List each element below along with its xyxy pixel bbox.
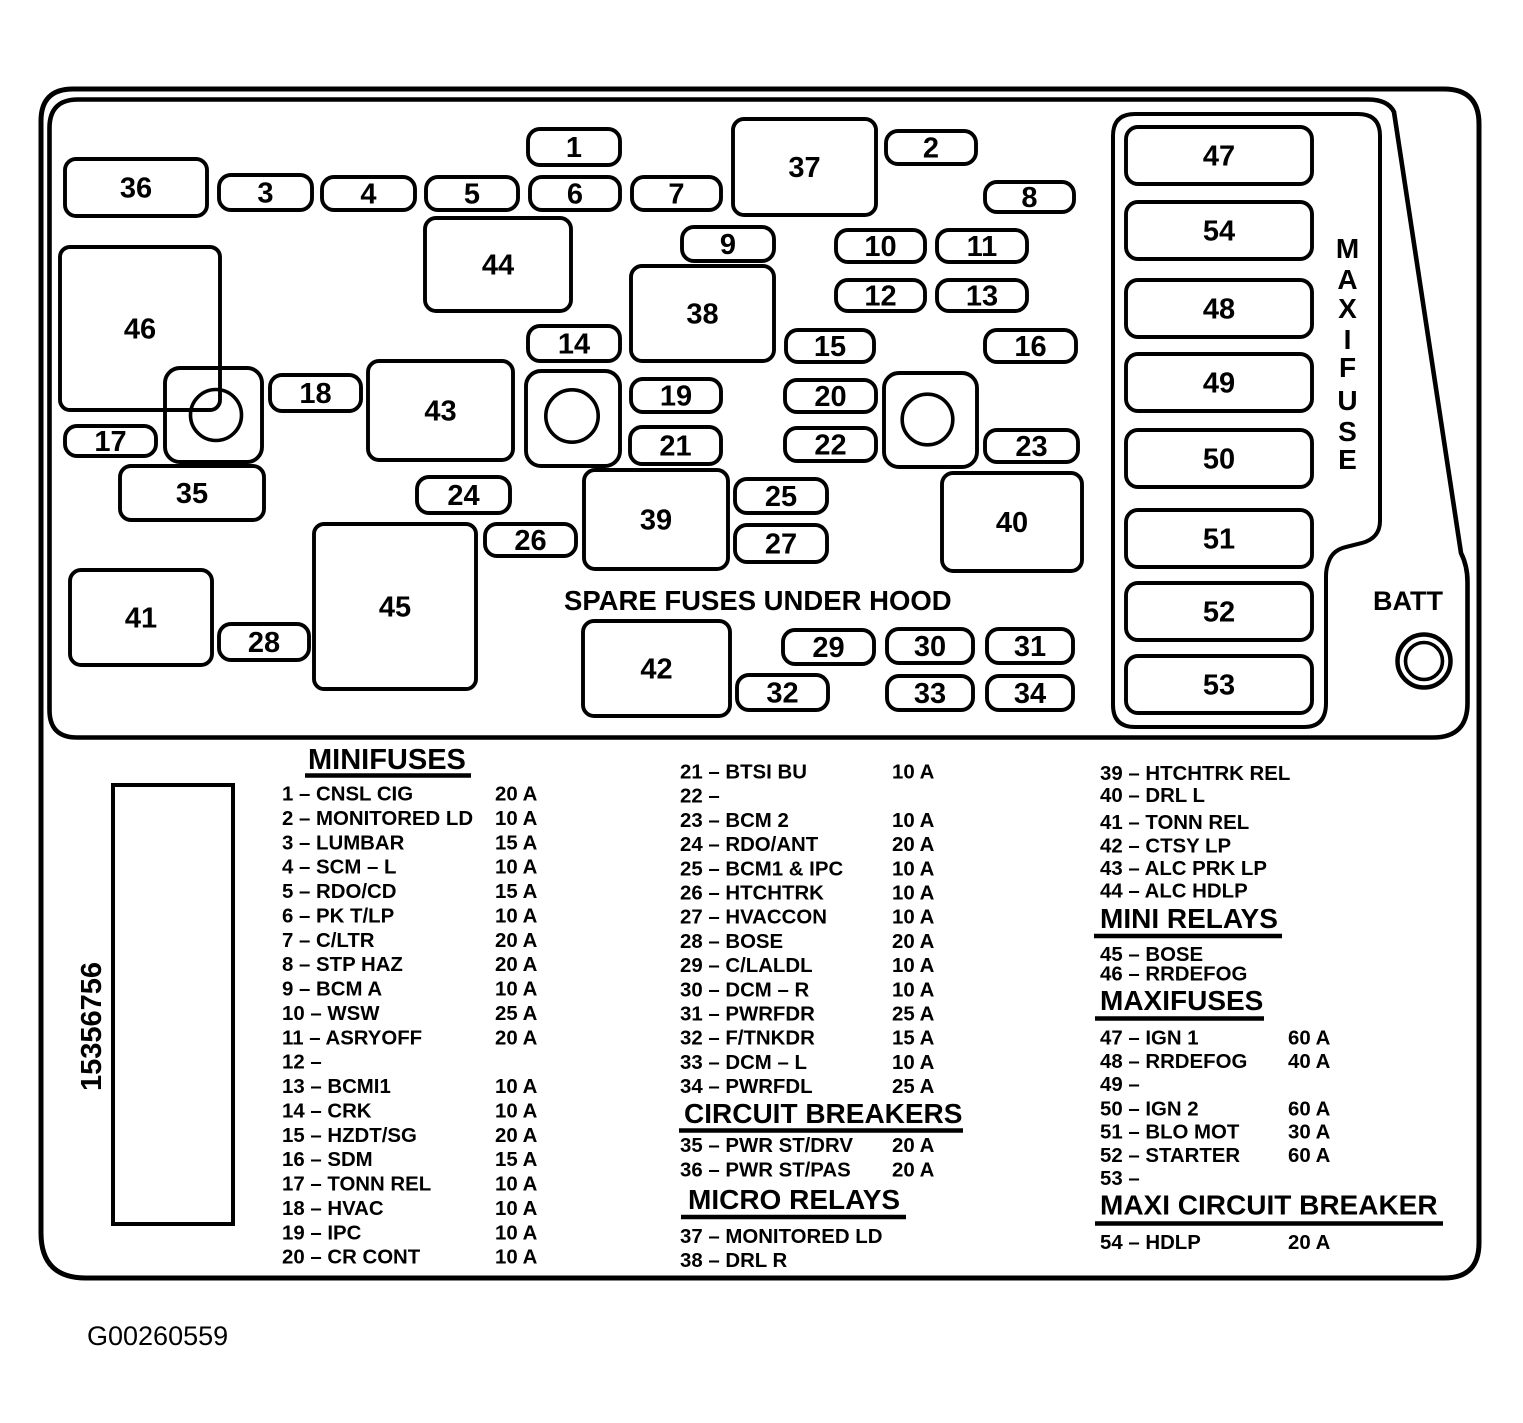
svg-text:19: 19	[660, 381, 692, 413]
svg-text:20 A: 20 A	[1288, 1232, 1331, 1254]
svg-text:46: 46	[124, 314, 156, 346]
svg-text:9: 9	[720, 229, 736, 261]
svg-text:22 –: 22 –	[680, 786, 720, 808]
svg-text:25 A: 25 A	[892, 1004, 935, 1026]
svg-text:1: 1	[566, 132, 582, 164]
svg-text:6: 6	[567, 179, 583, 211]
svg-text:15356756: 15356756	[76, 962, 108, 1091]
svg-text:37 – MONITORED LD: 37 – MONITORED LD	[680, 1226, 882, 1248]
svg-text:20 A: 20 A	[892, 931, 935, 953]
svg-text:12 –: 12 –	[282, 1052, 322, 1074]
svg-text:47: 47	[1203, 141, 1235, 173]
svg-text:48 – RRDEFOG: 48 – RRDEFOG	[1100, 1051, 1247, 1073]
svg-text:29 – C/LALDL: 29 – C/LALDL	[680, 955, 813, 977]
svg-text:18: 18	[299, 378, 331, 410]
svg-text:10 A: 10 A	[495, 906, 538, 928]
svg-text:20 A: 20 A	[495, 1125, 538, 1147]
svg-text:40: 40	[996, 507, 1028, 539]
svg-text:32 – F/TNKDR: 32 – F/TNKDR	[680, 1028, 815, 1050]
svg-text:10 A: 10 A	[892, 1052, 935, 1074]
svg-text:48: 48	[1203, 294, 1235, 326]
svg-text:38 – DRL R: 38 – DRL R	[680, 1250, 788, 1272]
svg-text:23 – BCM 2: 23 – BCM 2	[680, 810, 789, 832]
svg-text:16: 16	[1014, 331, 1046, 363]
svg-text:20: 20	[814, 381, 846, 413]
svg-text:10 – WSW: 10 – WSW	[282, 1003, 380, 1025]
svg-text:37: 37	[788, 152, 820, 184]
svg-text:29: 29	[812, 632, 844, 664]
svg-text:8: 8	[1021, 182, 1037, 214]
svg-text:16 – SDM: 16 – SDM	[282, 1149, 373, 1171]
svg-text:41: 41	[125, 603, 157, 635]
svg-text:S: S	[1338, 416, 1357, 447]
svg-text:25: 25	[765, 481, 797, 513]
svg-text:1 – CNSL CIG: 1 – CNSL CIG	[282, 784, 413, 806]
svg-text:10 A: 10 A	[495, 1247, 538, 1269]
svg-text:60 A: 60 A	[1288, 1098, 1331, 1120]
svg-text:7 – C/LTR: 7 – C/LTR	[282, 930, 375, 952]
svg-text:41 – TONN REL: 41 – TONN REL	[1100, 812, 1249, 834]
svg-text:13: 13	[966, 281, 998, 313]
svg-text:4 – SCM – L: 4 – SCM – L	[282, 857, 396, 879]
svg-text:35 – PWR ST/DRV: 35 – PWR ST/DRV	[680, 1135, 853, 1157]
svg-text:60 A: 60 A	[1288, 1028, 1331, 1050]
svg-text:3: 3	[257, 178, 273, 210]
svg-text:10: 10	[864, 231, 896, 263]
svg-text:30 A: 30 A	[1288, 1122, 1331, 1144]
svg-text:51: 51	[1203, 524, 1235, 556]
svg-text:17 – TONN REL: 17 – TONN REL	[282, 1174, 431, 1196]
svg-text:20 A: 20 A	[495, 784, 538, 806]
svg-text:25 – BCM1 & IPC: 25 – BCM1 & IPC	[680, 858, 843, 880]
svg-text:34 – PWRFDL: 34 – PWRFDL	[680, 1076, 813, 1098]
svg-text:10 A: 10 A	[495, 1174, 538, 1196]
svg-text:51 – BLO MOT: 51 – BLO MOT	[1100, 1122, 1240, 1144]
svg-text:MINIFUSES: MINIFUSES	[308, 744, 466, 776]
svg-text:42 – CTSY LP: 42 – CTSY LP	[1100, 835, 1231, 857]
svg-text:15 A: 15 A	[495, 881, 538, 903]
svg-text:35: 35	[176, 478, 208, 510]
svg-text:3 – LUMBAR: 3 – LUMBAR	[282, 832, 405, 854]
svg-text:I: I	[1344, 324, 1352, 355]
svg-text:40 – DRL L: 40 – DRL L	[1100, 785, 1205, 807]
svg-text:10 A: 10 A	[892, 883, 935, 905]
svg-text:10 A: 10 A	[495, 1100, 538, 1122]
svg-text:20 A: 20 A	[495, 954, 538, 976]
svg-text:15 A: 15 A	[495, 1149, 538, 1171]
svg-text:26 – HTCHTRK: 26 – HTCHTRK	[680, 883, 824, 905]
svg-text:12: 12	[864, 281, 896, 313]
svg-text:22: 22	[814, 430, 846, 462]
svg-text:43 – ALC PRK LP: 43 – ALC PRK LP	[1100, 858, 1267, 880]
svg-text:MAXIFUSES: MAXIFUSES	[1100, 985, 1263, 1016]
svg-text:M: M	[1336, 233, 1359, 264]
svg-text:28: 28	[248, 627, 280, 659]
svg-text:27: 27	[765, 529, 797, 561]
svg-text:X: X	[1338, 293, 1357, 324]
svg-text:50 – IGN 2: 50 – IGN 2	[1100, 1098, 1199, 1120]
svg-text:10 A: 10 A	[495, 1076, 538, 1098]
svg-text:52 – STARTER: 52 – STARTER	[1100, 1145, 1240, 1167]
svg-text:39 – HTCHTRK REL: 39 – HTCHTRK REL	[1100, 763, 1290, 785]
svg-text:MAXI CIRCUIT BREAKER: MAXI CIRCUIT BREAKER	[1100, 1189, 1438, 1220]
svg-text:10 A: 10 A	[892, 979, 935, 1001]
svg-text:30 – DCM – R: 30 – DCM – R	[680, 979, 809, 1001]
svg-text:10 A: 10 A	[892, 810, 935, 832]
svg-text:49: 49	[1203, 368, 1235, 400]
svg-text:10 A: 10 A	[495, 1198, 538, 1220]
svg-text:10 A: 10 A	[892, 762, 935, 784]
svg-text:2 – MONITORED LD: 2 – MONITORED LD	[282, 808, 473, 830]
svg-text:8 – STP HAZ: 8 – STP HAZ	[282, 954, 403, 976]
svg-text:36: 36	[120, 173, 152, 205]
svg-text:32: 32	[766, 678, 798, 710]
svg-text:11 – ASRYOFF: 11 – ASRYOFF	[282, 1027, 422, 1049]
svg-text:MICRO RELAYS: MICRO RELAYS	[688, 1184, 900, 1215]
svg-text:15 A: 15 A	[892, 1028, 935, 1050]
svg-text:10 A: 10 A	[495, 1222, 538, 1244]
svg-text:21: 21	[659, 431, 691, 463]
svg-text:36 – PWR ST/PAS: 36 – PWR ST/PAS	[680, 1160, 851, 1182]
svg-text:7: 7	[668, 179, 684, 211]
svg-text:10 A: 10 A	[495, 808, 538, 830]
svg-text:31: 31	[1014, 631, 1046, 663]
svg-text:26: 26	[514, 525, 546, 557]
svg-text:44 – ALC HDLP: 44 – ALC HDLP	[1100, 880, 1248, 902]
svg-text:13 – BCMI1: 13 – BCMI1	[282, 1076, 391, 1098]
svg-text:E: E	[1338, 444, 1357, 475]
svg-text:30: 30	[914, 631, 946, 663]
svg-text:10 A: 10 A	[495, 857, 538, 879]
svg-text:45: 45	[379, 592, 411, 624]
svg-text:G00260559: G00260559	[87, 1321, 228, 1351]
svg-text:CIRCUIT BREAKERS: CIRCUIT BREAKERS	[684, 1098, 962, 1129]
svg-text:53 –: 53 –	[1100, 1168, 1140, 1190]
svg-text:BATT: BATT	[1373, 586, 1443, 616]
svg-text:47 – IGN 1: 47 – IGN 1	[1100, 1028, 1199, 1050]
svg-text:20 A: 20 A	[892, 1160, 935, 1182]
svg-text:14: 14	[558, 329, 590, 361]
svg-text:20 – CR CONT: 20 – CR CONT	[282, 1247, 421, 1269]
svg-text:28 – BOSE: 28 – BOSE	[680, 931, 783, 953]
svg-text:33 – DCM – L: 33 – DCM – L	[680, 1052, 807, 1074]
svg-text:18 – HVAC: 18 – HVAC	[282, 1198, 384, 1220]
svg-text:43: 43	[424, 396, 456, 428]
svg-text:6 – PK T/LP: 6 – PK T/LP	[282, 906, 394, 928]
svg-text:15 A: 15 A	[495, 832, 538, 854]
svg-text:SPARE FUSES UNDER HOOD: SPARE FUSES UNDER HOOD	[564, 585, 952, 616]
svg-text:24: 24	[447, 480, 479, 512]
svg-text:27 – HVACCON: 27 – HVACCON	[680, 907, 827, 929]
svg-text:25 A: 25 A	[495, 1003, 538, 1025]
svg-text:52: 52	[1203, 597, 1235, 629]
svg-text:4: 4	[360, 179, 376, 211]
svg-text:5 – RDO/CD: 5 – RDO/CD	[282, 881, 396, 903]
svg-text:15 – HZDT/SG: 15 – HZDT/SG	[282, 1125, 417, 1147]
svg-text:10 A: 10 A	[892, 907, 935, 929]
svg-text:31 – PWRFDR: 31 – PWRFDR	[680, 1004, 815, 1026]
svg-text:46 – RRDEFOG: 46 – RRDEFOG	[1100, 963, 1247, 985]
svg-text:44: 44	[482, 250, 514, 282]
svg-text:38: 38	[686, 299, 718, 331]
svg-text:33: 33	[914, 678, 946, 710]
svg-text:15: 15	[814, 331, 846, 363]
svg-text:53: 53	[1203, 670, 1235, 702]
svg-text:49 –: 49 –	[1100, 1074, 1140, 1096]
svg-text:25 A: 25 A	[892, 1076, 935, 1098]
svg-text:50: 50	[1203, 444, 1235, 476]
svg-text:40 A: 40 A	[1288, 1051, 1331, 1073]
svg-text:23: 23	[1015, 431, 1047, 463]
svg-text:10 A: 10 A	[892, 955, 935, 977]
svg-text:60 A: 60 A	[1288, 1145, 1331, 1167]
svg-text:54 – HDLP: 54 – HDLP	[1100, 1232, 1201, 1254]
svg-text:F: F	[1339, 352, 1356, 383]
svg-text:9 – BCM A: 9 – BCM A	[282, 979, 382, 1001]
svg-text:5: 5	[464, 179, 480, 211]
svg-text:42: 42	[640, 654, 672, 686]
svg-text:11: 11	[967, 231, 998, 263]
svg-text:10 A: 10 A	[892, 858, 935, 880]
svg-text:17: 17	[94, 426, 126, 458]
svg-text:39: 39	[640, 505, 672, 537]
svg-text:24 – RDO/ANT: 24 – RDO/ANT	[680, 834, 819, 856]
svg-text:34: 34	[1014, 678, 1046, 710]
svg-text:A: A	[1337, 264, 1357, 295]
svg-text:2: 2	[923, 133, 939, 165]
svg-text:19 – IPC: 19 – IPC	[282, 1222, 362, 1244]
svg-text:20 A: 20 A	[495, 1027, 538, 1049]
svg-text:MINI RELAYS: MINI RELAYS	[1100, 903, 1278, 934]
svg-text:54: 54	[1203, 216, 1235, 248]
svg-text:20 A: 20 A	[495, 930, 538, 952]
svg-text:14 – CRK: 14 – CRK	[282, 1100, 372, 1122]
svg-text:20 A: 20 A	[892, 1135, 935, 1157]
svg-text:21 – BTSI BU: 21 – BTSI BU	[680, 762, 807, 784]
svg-text:U: U	[1337, 385, 1357, 416]
svg-text:10 A: 10 A	[495, 979, 538, 1001]
svg-text:20 A: 20 A	[892, 834, 935, 856]
